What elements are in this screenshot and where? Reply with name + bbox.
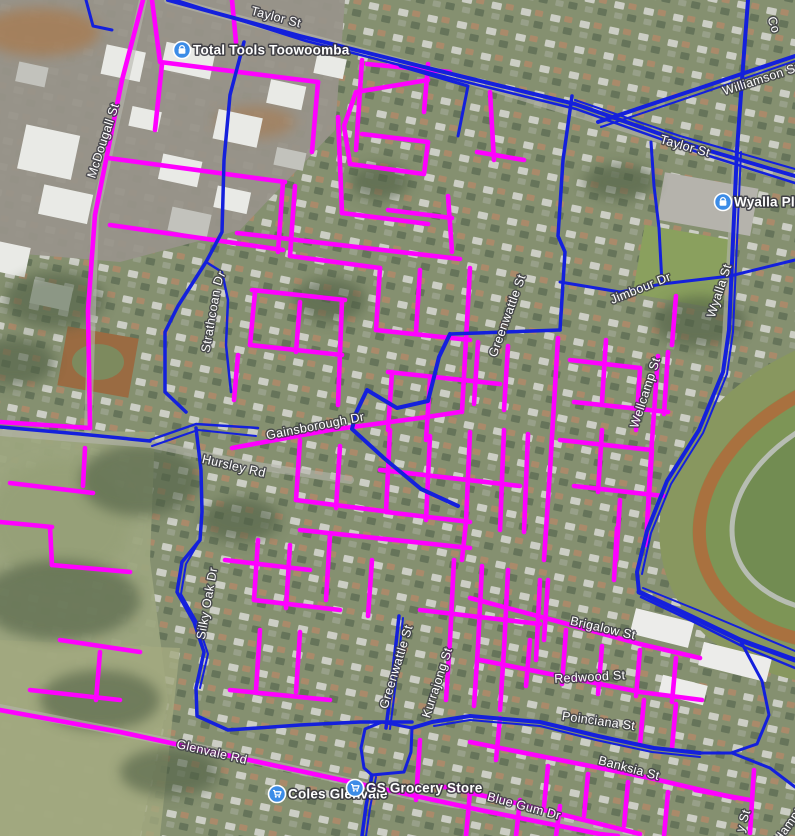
poi-label: GS Grocery Store — [366, 781, 483, 796]
map-svg: Taylor StTaylor StWilliamson StCoMcDouga… — [0, 0, 795, 836]
gps-track-covered-94 — [50, 527, 52, 565]
gps-track-covered-93 — [83, 448, 85, 486]
poi-gs-grocery-store[interactable]: GS Grocery Store — [347, 780, 483, 797]
shopping-cart-icon — [269, 786, 286, 803]
poi-label: Total Tools Toowoomba — [193, 43, 350, 58]
gps-track-covered-71 — [614, 528, 617, 580]
satellite-map-canvas[interactable]: Taylor StTaylor StWilliamson StCoMcDouga… — [0, 0, 795, 836]
poi-label: Wyalla Plaza — [734, 195, 795, 210]
poi-total-tools-toowoomba[interactable]: Total Tools Toowoomba — [174, 42, 350, 59]
shopping-cart-icon — [347, 780, 364, 797]
poi-wyalla-plaza[interactable]: Wyalla Plaza — [715, 194, 795, 211]
